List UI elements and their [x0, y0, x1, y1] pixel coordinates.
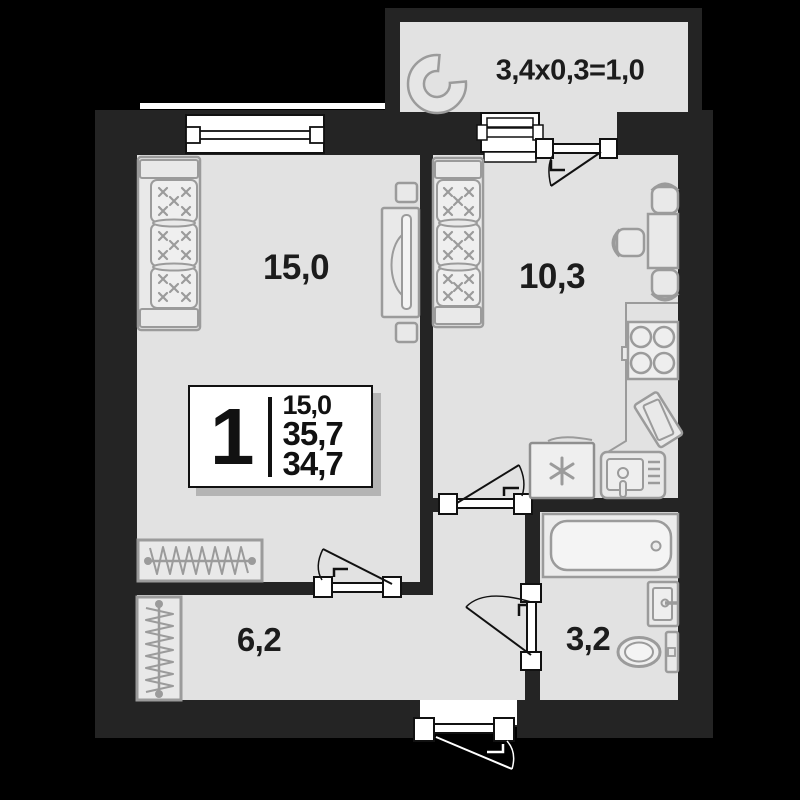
chair-icon [617, 229, 644, 256]
kitchen-sink-icon [601, 452, 665, 498]
info-card-divider [268, 397, 272, 477]
washbasin-icon [648, 582, 678, 626]
balcony-right-wall [688, 8, 702, 115]
table-top [648, 214, 678, 268]
wardrobe-living-icon [138, 540, 262, 581]
chair-icon [652, 187, 678, 213]
area-figures: 15,0 35,7 34,7 [283, 393, 343, 479]
hallway-area-label: 6,2 [237, 621, 281, 659]
sofa-kitchen-icon [433, 158, 483, 327]
bathtub-icon [543, 514, 678, 577]
living-room-area-label: 15,0 [263, 248, 329, 288]
reduced-area-value: 34,7 [283, 449, 343, 479]
fridge-icon [530, 437, 594, 498]
bathroom-area-label: 3,2 [566, 620, 610, 658]
balcony-area-label: 3,4x0,3=1,0 [496, 55, 645, 88]
apartment-number: 1 [210, 403, 253, 471]
tv-icon [382, 183, 419, 342]
floor-plan: 15,0 10,3 6,2 3,2 3,4x0,3=1,0 1 15,0 35,… [0, 0, 800, 800]
balcony-top-wall [385, 8, 702, 22]
balcony-window-icon [477, 113, 543, 162]
apartment-info-card: 1 15,0 35,7 34,7 [188, 385, 373, 488]
hallway-corridor-floor [433, 512, 525, 595]
facade-edge-line [140, 103, 385, 109]
living-window-icon [186, 115, 324, 153]
balcony-left-wall [385, 8, 400, 115]
kitchen-area-label: 10,3 [519, 257, 585, 297]
sofa-living-icon [138, 157, 200, 330]
hallway-floor [137, 595, 525, 700]
wardrobe-hallway-icon [137, 597, 181, 700]
floor-plan-drawing [0, 0, 800, 800]
chair-icon [652, 270, 678, 296]
stove-icon [622, 322, 678, 379]
